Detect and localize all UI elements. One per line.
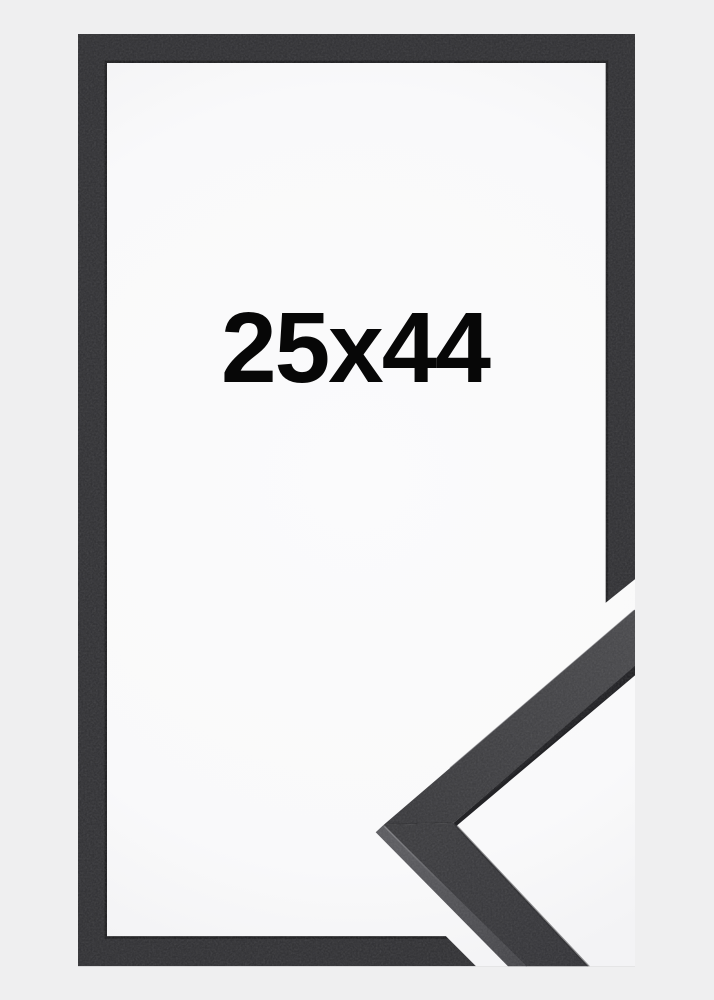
svg-text:25x44: 25x44 xyxy=(221,292,491,404)
